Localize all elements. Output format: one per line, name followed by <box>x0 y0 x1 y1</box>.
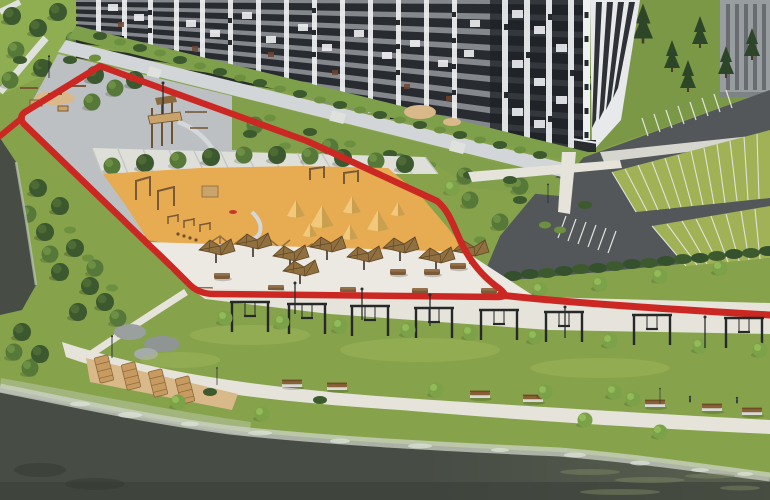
render-viewport <box>0 0 770 500</box>
distant-building <box>720 0 770 97</box>
person-figure <box>736 397 738 404</box>
play-box <box>202 186 218 197</box>
red-play-mat <box>229 210 237 214</box>
sand-pit <box>443 118 461 126</box>
person-figure <box>689 396 691 403</box>
masterplan-render <box>0 0 770 500</box>
sand-pit <box>404 105 436 119</box>
corner-strip <box>583 0 590 150</box>
tree-reflection <box>14 463 66 477</box>
tree-reflection <box>65 478 125 490</box>
